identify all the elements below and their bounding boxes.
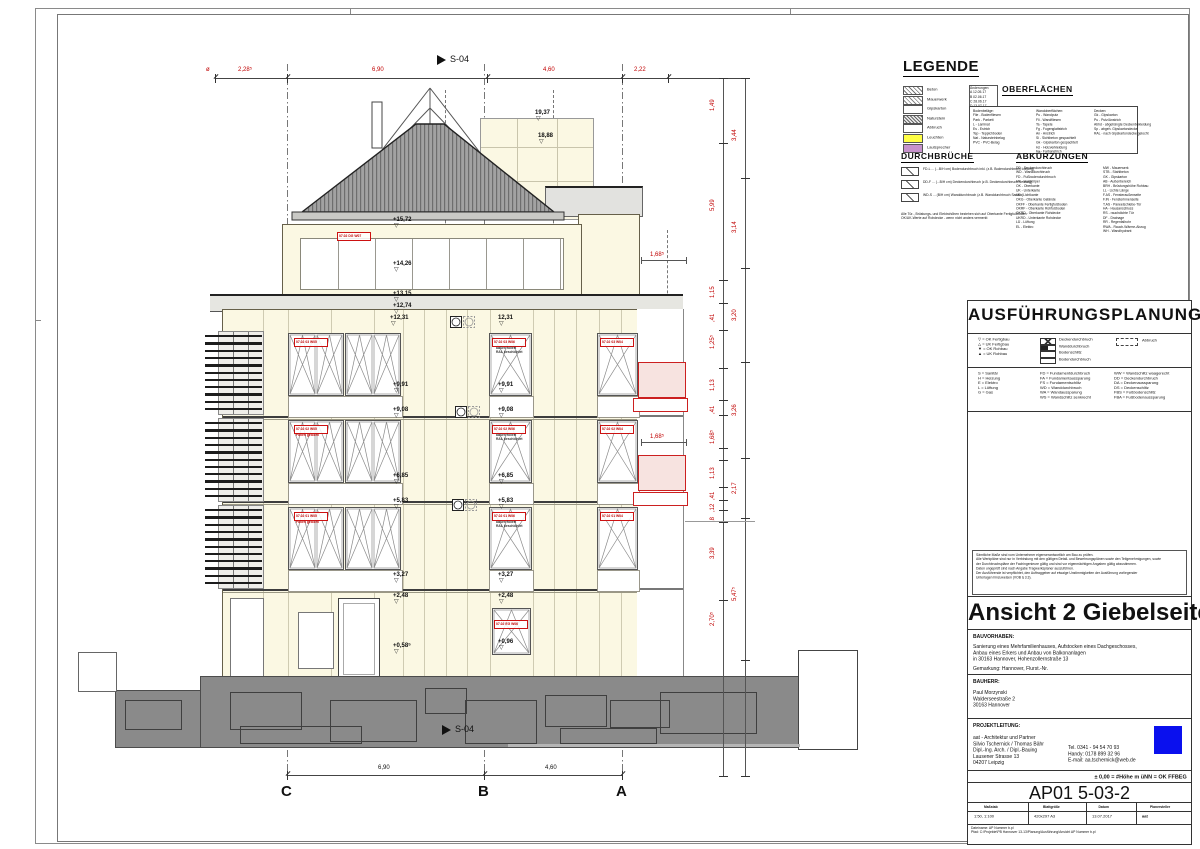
- louver-slat: [205, 350, 262, 352]
- louver-slat: [205, 560, 262, 562]
- louver-slat: [205, 459, 262, 461]
- level-marker-icon: ▽: [394, 266, 399, 273]
- louver-slat: [205, 379, 262, 381]
- level-marker-icon: ▽: [391, 320, 396, 327]
- mullion: [560, 239, 561, 289]
- ground-window: [492, 608, 531, 655]
- wing-slab: [637, 588, 683, 590]
- chain-tick: [741, 362, 750, 363]
- window-tag-code: 07.02 03 W06: [494, 340, 515, 344]
- floor-slab-line: [223, 416, 638, 418]
- panel-joint: [424, 310, 425, 679]
- retaining-wall: [545, 695, 607, 727]
- dimension-label: ,41: [710, 492, 716, 500]
- window-sill: [288, 570, 403, 592]
- terrain-structure: [798, 650, 858, 750]
- louver-slat: [205, 509, 262, 511]
- dimension-label: 3,20: [732, 309, 738, 321]
- chain-tick: [719, 448, 728, 449]
- window-tag: 07.02 EG W06: [494, 620, 528, 629]
- level-marker-icon: ▽: [394, 503, 399, 510]
- dimension-prefix: ø: [206, 67, 210, 73]
- floor-slab-line2: [223, 419, 638, 420]
- ground-panel: [230, 598, 264, 678]
- dimension-label: 1,49: [710, 99, 716, 111]
- chain-tick: [741, 518, 750, 519]
- new-balcony-slab: [633, 398, 688, 412]
- chain-tick: [741, 78, 750, 79]
- grid-letter: C: [281, 783, 292, 800]
- mullion: [486, 239, 487, 289]
- window-tag-code: 07.02 02 W04: [602, 427, 623, 431]
- louver-slat: [205, 466, 262, 468]
- louver-slat: [205, 488, 262, 490]
- new-balcony: [638, 362, 686, 398]
- chain-tick: [719, 303, 728, 304]
- terrain-structure: [78, 652, 117, 692]
- level-marker-icon: ▽: [499, 412, 504, 419]
- ground-ref-line: [685, 521, 755, 522]
- retaining-wall: [560, 728, 657, 744]
- level-marker-icon: ▽: [499, 644, 504, 651]
- dimension-label: 2,70⁵: [710, 612, 716, 626]
- dimension-label: 3,39: [710, 547, 716, 559]
- louver-slat: [205, 342, 262, 344]
- window-tag-note: RAL beschichtet: [496, 524, 522, 528]
- dimension-label: 2,17: [732, 482, 738, 494]
- dimension-label: 2,22: [634, 67, 646, 73]
- dimension-label: 1,13: [710, 467, 716, 479]
- deckendurchbruch-symbol: [450, 315, 476, 327]
- louver-slat: [205, 422, 262, 424]
- retaining-wall: [425, 688, 467, 714]
- dimension-label: 1,68⁵: [710, 430, 716, 444]
- window-tag: 07.02 02 W04: [600, 425, 634, 434]
- louver-slat: [205, 538, 262, 540]
- louver-slat: [205, 480, 262, 482]
- panel-joint: [576, 310, 577, 679]
- level-marker-icon: ▽: [394, 577, 399, 584]
- dimension-label: ,41: [710, 314, 716, 322]
- chain-tick: [719, 368, 728, 369]
- dimension-label: 2,28⁵: [238, 67, 252, 73]
- chain-tick: [741, 178, 750, 179]
- dim-line: [287, 775, 622, 776]
- floor-slab-line: [223, 501, 638, 503]
- dimension-label: 3,44: [732, 129, 738, 141]
- grid-letter: B: [478, 783, 489, 800]
- mullion: [375, 239, 376, 289]
- panel-joint: [554, 310, 555, 679]
- window-sill: [288, 396, 403, 418]
- window-tag-code: 07.02 01 W05: [296, 514, 317, 518]
- chain-tick: [741, 776, 750, 777]
- louver-slat: [205, 437, 262, 439]
- chain-tick: [719, 330, 728, 331]
- new-balcony-slab: [633, 492, 688, 506]
- dim-line: [641, 442, 686, 443]
- dimension-label: 3,14: [732, 221, 738, 233]
- level-marker-icon: ▽: [394, 387, 399, 394]
- window-tag-code: 07.02 03 W05: [296, 340, 317, 344]
- level-marker-icon: ▽: [499, 387, 504, 394]
- louver-slat: [205, 386, 262, 388]
- window-tag-code: 07.02 EG W06: [496, 622, 518, 626]
- chain-tick: [741, 268, 750, 269]
- chain-tick: [719, 510, 728, 511]
- panel-joint: [446, 310, 447, 679]
- elevation-drawing: 1,68⁵1,68⁵S-04S-04ø2,28⁵6,904,602,226,90…: [0, 0, 1200, 849]
- level-marker-icon: ▽: [499, 503, 504, 510]
- level-marker-icon: ▽: [394, 308, 399, 315]
- louver-slat: [205, 531, 262, 533]
- panel-joint: [403, 310, 404, 679]
- window-tag-code: 07.02 02 W05: [296, 427, 317, 431]
- dimension-label: 1,15: [710, 286, 716, 298]
- window: [345, 507, 401, 570]
- dimension-label: 6,90: [372, 67, 384, 73]
- dimension-label: 4,60: [543, 67, 555, 73]
- level-marker-icon: ▽: [394, 222, 399, 229]
- chain-tick: [719, 400, 728, 401]
- chain-line: [745, 78, 746, 776]
- dimension-label: 5,99: [710, 199, 716, 211]
- chain-tick: [719, 522, 728, 523]
- mullion: [449, 239, 450, 289]
- louver-slat: [205, 372, 262, 374]
- section-marker-label: S-04: [450, 54, 469, 64]
- dim-tick: [686, 257, 687, 264]
- louver-slat: [205, 335, 262, 337]
- chain-tick: [719, 460, 728, 461]
- main-facade: [222, 309, 639, 680]
- window-tag-code: 07.02 03 W04: [602, 340, 623, 344]
- level-marker-icon: ▽: [394, 412, 399, 419]
- level-marker-icon: ▽: [394, 478, 399, 485]
- drawing-sheet: LEGENDE BetonMauerwerkGipskartonNaturste…: [0, 0, 1200, 849]
- wing-slab: [637, 415, 683, 417]
- window-tag-code: 07.02 01 W06: [494, 514, 515, 518]
- floor-slab-line: [223, 589, 638, 591]
- louver-slat: [205, 357, 262, 359]
- window-sill: [597, 570, 640, 592]
- door-leaf: [343, 603, 375, 675]
- louver-slat: [205, 444, 262, 446]
- section-marker-label: S-04: [455, 724, 474, 734]
- window-tag-note: RAL beschichtet: [496, 437, 522, 441]
- deckendurchbruch-symbol: [452, 498, 478, 510]
- deckendurchbruch-symbol: [455, 405, 481, 417]
- dimension-label: 3,26: [732, 404, 738, 416]
- chain-tick: [719, 280, 728, 281]
- chain-line: [723, 78, 724, 776]
- dimension-label: ,41: [710, 406, 716, 414]
- dim-tick: [641, 257, 642, 264]
- dimension-label: 1,68⁵: [650, 252, 664, 258]
- mullion: [338, 239, 339, 289]
- window-tag: 07.02 01 W04: [600, 512, 634, 521]
- window-tag-code: 07.02 DG W07: [339, 234, 361, 238]
- chain-tick: [719, 415, 728, 416]
- dimension-label: 1,25⁵: [710, 335, 716, 349]
- chain-tick: [719, 143, 728, 144]
- entrance-door: [338, 598, 380, 678]
- level-marker-icon: ▽: [499, 577, 504, 584]
- floor-slab-line2: [223, 504, 638, 505]
- new-balcony: [638, 455, 686, 491]
- retaining-wall: [465, 700, 537, 744]
- louver-slat: [205, 451, 262, 453]
- dimension-label: 5,47⁵: [732, 587, 738, 601]
- level-marker-icon: ▽: [394, 296, 399, 303]
- retaining-wall: [125, 700, 182, 730]
- chain-tick: [719, 487, 728, 488]
- louver-slat: [205, 495, 262, 497]
- retaining-wall: [330, 700, 417, 742]
- terrain-slab: [508, 744, 800, 747]
- window-tag-code: 07.02 01 W04: [602, 514, 623, 518]
- louver-slat: [205, 546, 262, 548]
- floor-slab-line2: [223, 592, 638, 593]
- stair-tower: [578, 214, 640, 302]
- louver-slat: [205, 364, 262, 366]
- window-tag-note: Folien gelocht: [296, 520, 319, 524]
- chain-tick: [719, 500, 728, 501]
- window-tag: 07.02 03 W04: [600, 338, 634, 347]
- louver-slat: [205, 401, 262, 403]
- level-marker-icon: ▽: [499, 478, 504, 485]
- louver-slat: [205, 567, 262, 569]
- window-tag-note: RAL beschichtet: [496, 350, 522, 354]
- window-tag-code: 07.02 02 W06: [494, 427, 515, 431]
- level-marker-icon: ▽: [499, 320, 504, 327]
- level-marker-icon: ▽: [394, 598, 399, 605]
- mullion: [523, 239, 524, 289]
- panel-joint: [467, 310, 468, 679]
- level-marker-icon: ▽: [394, 648, 399, 655]
- louver-slat: [205, 516, 262, 518]
- roof: [268, 78, 588, 224]
- dimension-label: 1,13: [710, 379, 716, 391]
- louver-slat: [205, 429, 262, 431]
- dimension-label: 6,90: [378, 765, 390, 771]
- dg-glazing: [300, 238, 564, 290]
- chain-tick: [719, 776, 728, 777]
- dim-tick: [641, 439, 642, 446]
- level-marker-icon: ▽: [539, 138, 544, 145]
- dimension-label: 1,68⁵: [650, 434, 664, 440]
- dimension-label: ,12: [710, 504, 716, 512]
- window-tag: 07.02 DG W07: [337, 232, 371, 241]
- mullion: [412, 239, 413, 289]
- chain-tick: [719, 600, 728, 601]
- retaining-wall: [660, 692, 757, 734]
- window-sill: [288, 483, 403, 505]
- level-marker-icon: ▽: [499, 598, 504, 605]
- window-tag-note: Folien gelocht: [296, 433, 319, 437]
- dimension-label: 4,60: [545, 765, 557, 771]
- chain-tick: [741, 458, 750, 459]
- louver-slat: [205, 582, 262, 584]
- retaining-wall: [230, 692, 302, 730]
- chain-tick: [741, 660, 750, 661]
- dim-tick: [686, 439, 687, 446]
- section-marker-arrow-icon: [437, 55, 446, 65]
- dim-line: [641, 260, 686, 261]
- chain-tick: [719, 78, 728, 79]
- section-marker-arrow-icon: [442, 725, 451, 735]
- louver-slat: [205, 473, 262, 475]
- level-marker-icon: ▽: [536, 115, 541, 122]
- louver-slat: [205, 553, 262, 555]
- louver-slat: [205, 524, 262, 526]
- louver-slat: [205, 393, 262, 395]
- louver-slat: [205, 575, 262, 577]
- grid-letter: A: [616, 783, 627, 800]
- ground-panel: [298, 612, 334, 669]
- window-tag: 07.02 03 W05: [294, 338, 328, 347]
- louver-slat: [205, 408, 262, 410]
